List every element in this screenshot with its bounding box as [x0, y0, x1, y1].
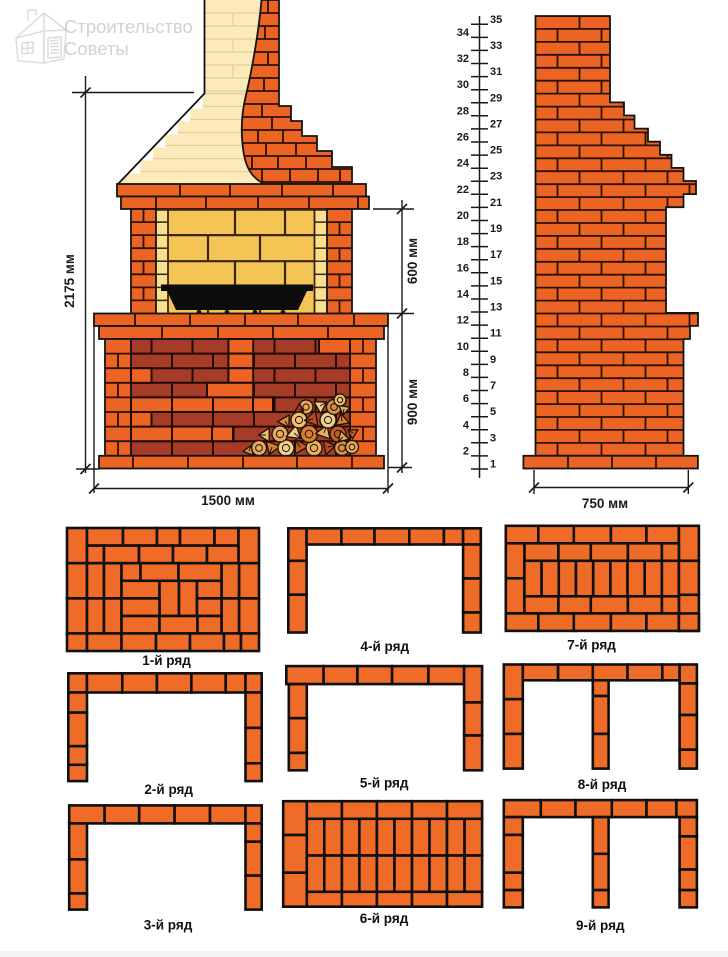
svg-text:7-й ряд: 7-й ряд: [567, 638, 616, 653]
svg-text:35: 35: [490, 14, 502, 26]
svg-text:25: 25: [490, 145, 502, 157]
svg-text:6-й ряд: 6-й ряд: [360, 911, 409, 926]
svg-text:900 мм: 900 мм: [405, 379, 420, 425]
svg-text:33: 33: [490, 40, 502, 52]
svg-text:31: 31: [490, 66, 502, 78]
svg-text:8-й ряд: 8-й ряд: [578, 777, 627, 792]
svg-text:15: 15: [490, 275, 502, 287]
svg-text:9: 9: [490, 354, 496, 366]
svg-text:2: 2: [463, 445, 469, 457]
svg-text:12: 12: [457, 315, 469, 327]
svg-text:13: 13: [490, 302, 502, 314]
svg-text:2175 мм: 2175 мм: [62, 254, 77, 308]
svg-text:6: 6: [463, 393, 469, 405]
svg-text:34: 34: [457, 27, 470, 39]
svg-text:24: 24: [457, 158, 470, 170]
svg-text:21: 21: [490, 197, 502, 209]
svg-text:26: 26: [457, 132, 469, 144]
svg-text:4: 4: [463, 419, 470, 431]
svg-text:9-й ряд: 9-й ряд: [576, 918, 625, 933]
svg-text:20: 20: [457, 210, 469, 222]
svg-text:28: 28: [457, 105, 469, 117]
svg-text:18: 18: [457, 236, 469, 248]
svg-text:29: 29: [490, 92, 502, 104]
svg-text:3: 3: [490, 432, 496, 444]
svg-text:19: 19: [490, 223, 502, 235]
svg-text:16: 16: [457, 262, 469, 274]
svg-text:23: 23: [490, 171, 502, 183]
svg-text:32: 32: [457, 53, 469, 65]
svg-text:5: 5: [490, 406, 496, 418]
svg-text:Строительство: Строительство: [64, 16, 193, 37]
svg-text:8: 8: [463, 367, 469, 379]
svg-text:Советы: Советы: [64, 38, 129, 59]
svg-text:750 мм: 750 мм: [582, 496, 628, 511]
svg-text:600 мм: 600 мм: [405, 238, 420, 284]
svg-text:4-й ряд: 4-й ряд: [361, 639, 410, 654]
svg-text:22: 22: [457, 184, 469, 196]
svg-text:3-й ряд: 3-й ряд: [144, 918, 193, 933]
svg-text:10: 10: [457, 341, 469, 353]
svg-text:30: 30: [457, 79, 469, 91]
svg-text:5-й ряд: 5-й ряд: [360, 776, 409, 791]
svg-text:11: 11: [490, 328, 502, 340]
svg-text:7: 7: [490, 380, 496, 392]
svg-text:27: 27: [490, 118, 502, 130]
svg-text:1: 1: [490, 459, 496, 471]
svg-text:17: 17: [490, 249, 502, 261]
svg-text:1500 мм: 1500 мм: [201, 493, 255, 508]
svg-text:1-й ряд: 1-й ряд: [142, 653, 191, 668]
svg-text:2-й ряд: 2-й ряд: [144, 782, 193, 797]
svg-text:14: 14: [457, 289, 470, 301]
